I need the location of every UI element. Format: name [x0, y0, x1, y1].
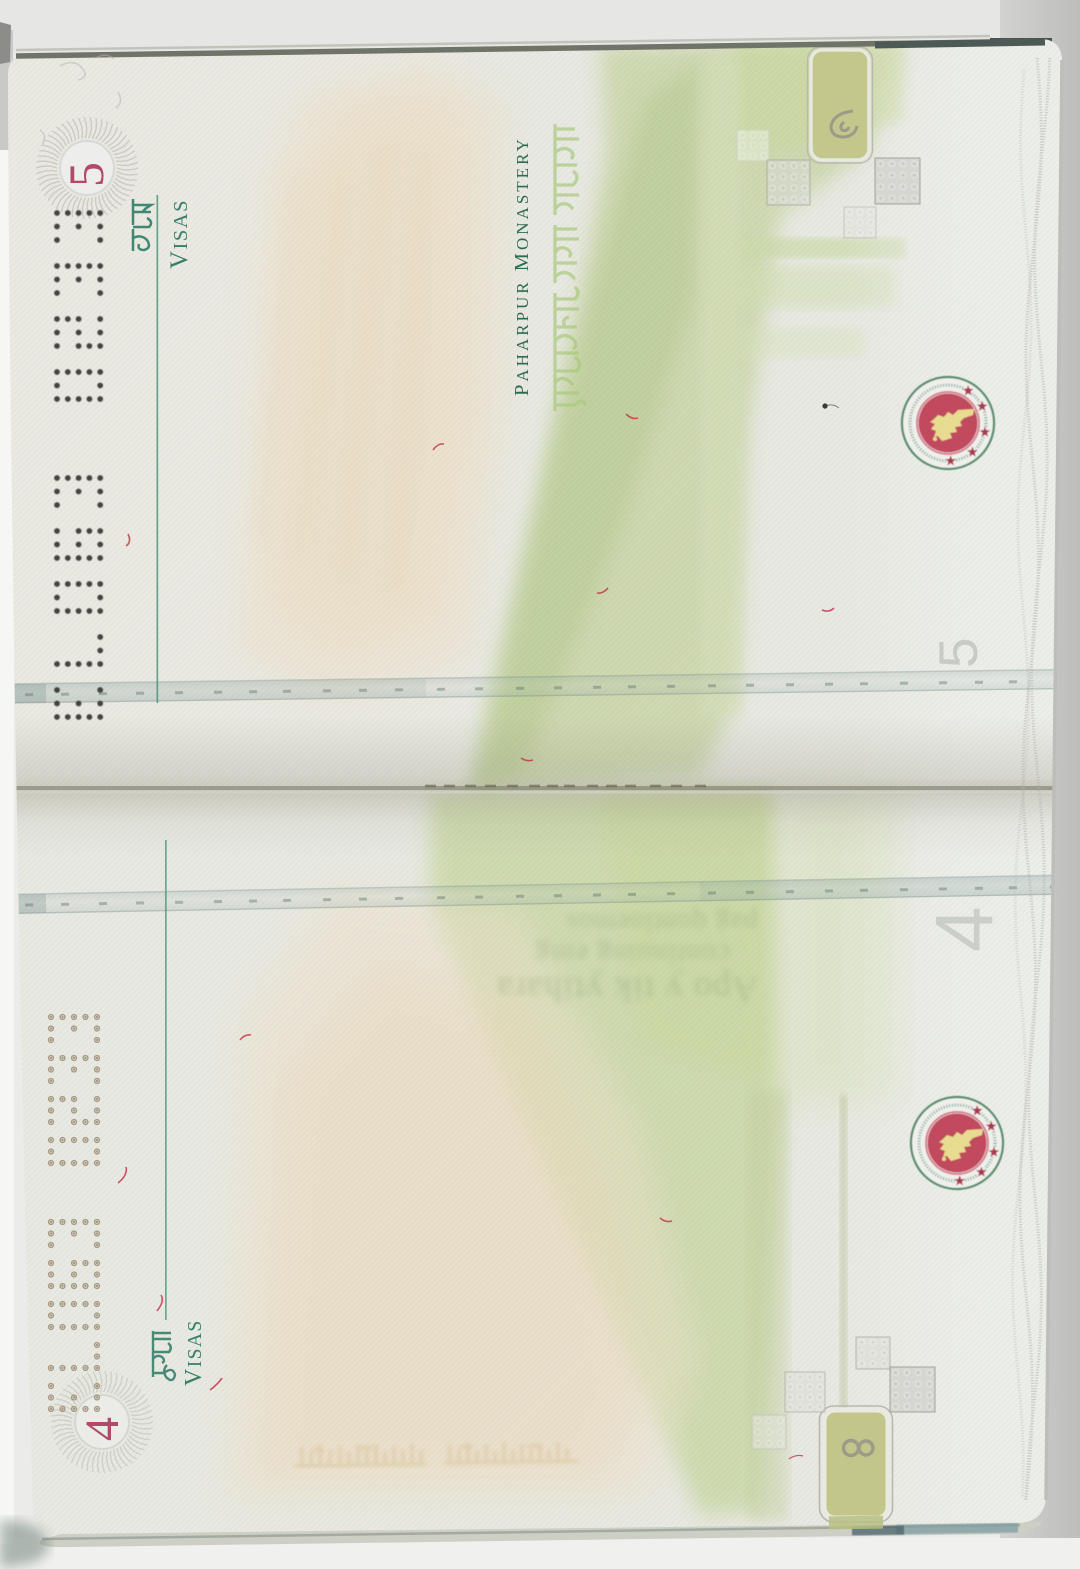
svg-text:5: 5 — [927, 637, 989, 668]
svg-text:pag qontinemos: pag qontinemos — [566, 907, 758, 938]
svg-text:PAHARPUR MONASTERY: PAHARPUR MONASTERY — [511, 136, 533, 396]
svg-text:4: 4 — [76, 1417, 129, 1441]
svg-text:5: 5 — [58, 162, 114, 187]
svg-text:4: 4 — [919, 906, 1010, 952]
svg-text:VISAS: VISAS — [181, 1319, 207, 1386]
svg-text:continuing emg: continuing emg — [535, 938, 730, 970]
svg-text:Apo y tik ytihara: Apo y tik ytihara — [496, 970, 758, 1010]
svg-text:VISAS: VISAS — [166, 199, 193, 269]
